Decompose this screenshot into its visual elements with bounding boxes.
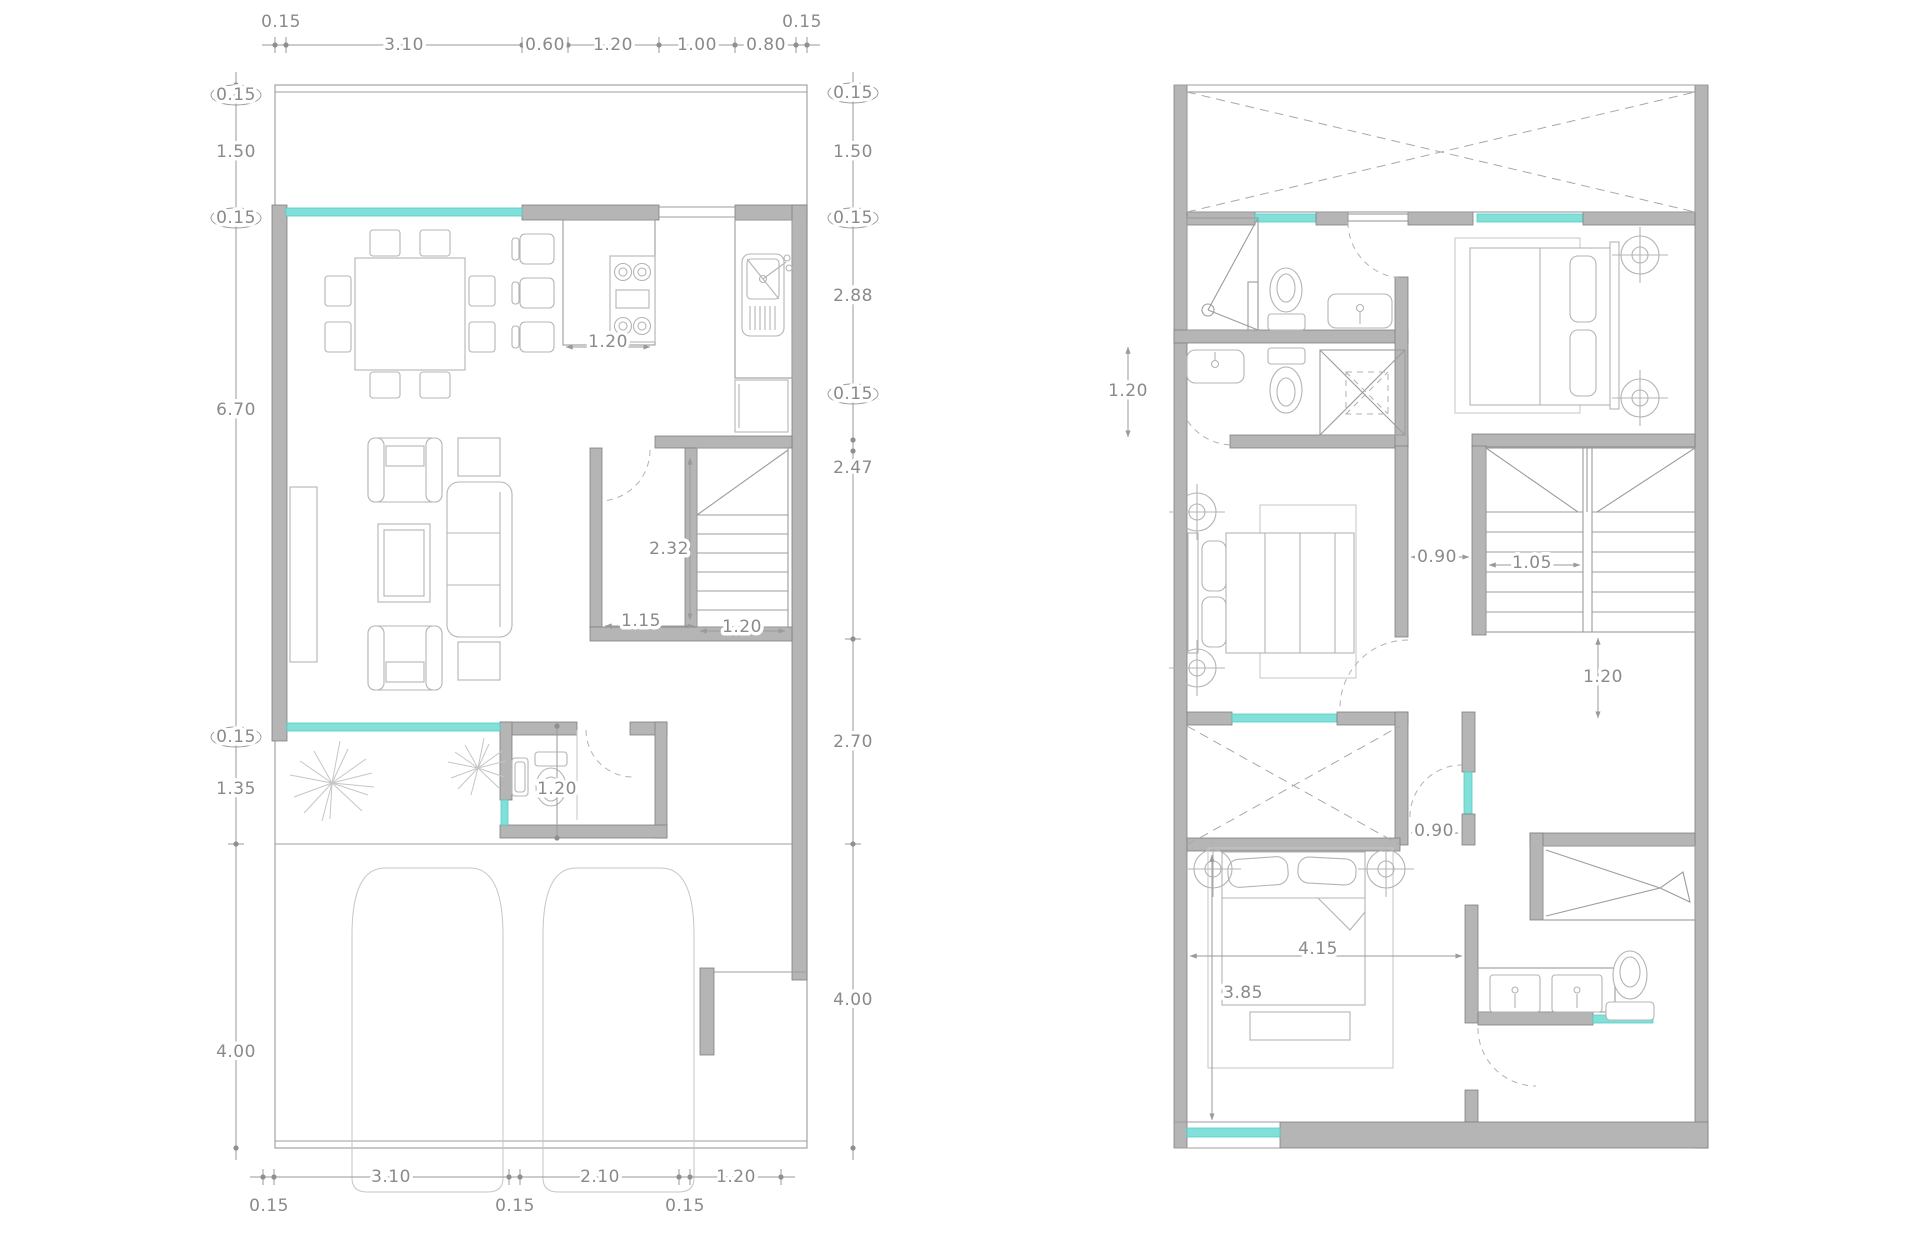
bathroom-3 [1478, 951, 1654, 1020]
window-glass [287, 723, 500, 731]
shower [1187, 218, 1258, 330]
wall [1395, 446, 1408, 637]
side-table [458, 642, 500, 680]
dim-label: 0.15 [261, 12, 301, 32]
car [352, 868, 503, 1192]
kitchen-sink [742, 254, 792, 336]
dim-label: 0.15 [833, 384, 873, 404]
door-arc [1348, 222, 1404, 278]
bedroom-2 [1169, 484, 1356, 696]
dim-label: 3.85 [1223, 983, 1263, 1003]
toilet [1268, 348, 1305, 413]
wall [1472, 434, 1695, 447]
sink [1187, 350, 1244, 383]
ceiling-light [1612, 370, 1668, 426]
dim-label: 1.00 [677, 35, 717, 55]
wall [500, 825, 667, 838]
wall [792, 205, 807, 980]
wall [1187, 712, 1232, 725]
bar-stool [512, 322, 554, 352]
pillow [1570, 256, 1596, 322]
dim-label: 1.20 [722, 617, 762, 637]
armchair [368, 438, 442, 502]
dim-label: 4.00 [833, 990, 873, 1010]
toilet [1268, 268, 1305, 330]
wall [590, 448, 602, 627]
pillow [1202, 597, 1226, 647]
dim-label: 1.20 [588, 332, 628, 352]
toilet [1606, 951, 1654, 1020]
door-arc [599, 450, 650, 501]
pillow [1202, 541, 1226, 591]
tv-console [290, 487, 317, 662]
dim-label: 0.15 [833, 83, 873, 103]
coffee-table [378, 524, 430, 602]
dim-label: 1.20 [716, 1167, 756, 1187]
dim-label: 2.10 [580, 1167, 620, 1187]
stairs [697, 448, 788, 627]
stair-treads [697, 515, 788, 610]
dim-label: 1.20 [593, 35, 633, 55]
dim-label: 0.15 [665, 1196, 705, 1216]
bed [1188, 533, 1354, 653]
window-glass [1464, 772, 1472, 814]
pillow [1297, 857, 1356, 886]
dim-label: 0.15 [495, 1196, 535, 1216]
wall [1465, 905, 1478, 1023]
window-glass [1477, 214, 1583, 222]
wall [1472, 446, 1486, 635]
dim-label: 2.70 [833, 732, 873, 752]
bathroom-2 [1187, 348, 1405, 435]
floor-plan-sheet: 0.153.100.601.201.000.800.15 0.151.500.1… [0, 0, 1920, 1242]
stove [610, 256, 655, 342]
sofa [447, 482, 512, 637]
wall [1462, 712, 1475, 772]
bar-stool [512, 234, 554, 264]
wall [1280, 1122, 1708, 1148]
dim-label: 2.47 [833, 458, 873, 478]
dim-label: 0.15 [249, 1196, 289, 1216]
chair [370, 372, 400, 398]
garage [352, 868, 694, 1192]
sink [512, 758, 528, 796]
side-table [458, 438, 500, 476]
dim-label: 0.80 [746, 35, 786, 55]
chair [370, 230, 400, 256]
wall [1187, 838, 1400, 851]
ceiling-light [1612, 227, 1668, 283]
dim-label: 0.15 [782, 12, 822, 32]
dim-label: 1.35 [216, 779, 256, 799]
dim-label: 0.60 [525, 35, 565, 55]
car [543, 868, 694, 1192]
kitchen [512, 220, 792, 432]
bedroom-1 [1455, 227, 1668, 426]
chair [325, 276, 351, 306]
bedroom-3 [1185, 841, 1462, 1120]
wall [1174, 330, 1408, 343]
window-glass [1232, 714, 1337, 722]
window-glass [1255, 214, 1316, 222]
plant-icon [290, 741, 374, 821]
door-leaf [1348, 214, 1408, 221]
dim-label: 3.10 [384, 35, 424, 55]
bathroom-1 [1187, 218, 1392, 330]
dim-label: 2.32 [649, 539, 689, 559]
bench [1250, 1012, 1350, 1040]
dim-label: 1.20 [1108, 381, 1148, 401]
pillow [1227, 856, 1289, 888]
wall [655, 722, 667, 838]
chair [325, 322, 351, 352]
wall [1395, 277, 1408, 448]
door-arc [586, 730, 633, 777]
dining-table [325, 230, 495, 398]
window-glass [286, 208, 522, 216]
window-glass [1187, 1128, 1280, 1137]
sink [1490, 975, 1540, 1012]
bed [1470, 242, 1619, 409]
wall [1408, 212, 1473, 225]
wall [272, 205, 287, 741]
wall [1695, 85, 1708, 1148]
chair [420, 372, 450, 398]
dim-label: 3.10 [371, 1167, 411, 1187]
shower [1320, 350, 1405, 435]
dim-label: 0.15 [216, 208, 256, 228]
bar-stool [512, 278, 554, 308]
chair [469, 276, 495, 306]
walk-in-closet [1543, 846, 1695, 920]
wall [1530, 833, 1543, 920]
wall [1230, 435, 1408, 448]
fridge [735, 380, 788, 432]
left-plan-dims-top: 0.153.100.601.201.000.800.15 [261, 12, 822, 55]
armchair [368, 626, 442, 690]
dim-label: 1.15 [621, 611, 661, 631]
wall [1530, 833, 1695, 846]
dim-label: 2.88 [833, 286, 873, 306]
closet-void [1187, 726, 1400, 845]
wall [655, 436, 792, 448]
sink [1552, 975, 1602, 1012]
wall [1478, 1012, 1593, 1025]
terrace-void [1187, 92, 1695, 212]
left-plan: 0.153.100.601.201.000.800.15 0.151.500.1… [211, 12, 878, 1216]
wall [1583, 212, 1695, 225]
door-arc [1478, 1028, 1536, 1086]
chair [469, 322, 495, 352]
dim-label: 1.50 [216, 142, 256, 162]
wall [1174, 85, 1187, 1148]
dim-label: 1.05 [1512, 553, 1552, 573]
right-plan: 1.200.901.051.200.904.153.85 [1108, 85, 1708, 1148]
headboard [1610, 242, 1619, 409]
dim-label: 4.00 [216, 1042, 256, 1062]
dim-label: 6.70 [216, 400, 256, 420]
wall [700, 968, 714, 1055]
sink [1328, 294, 1392, 328]
dim-label: 4.15 [1298, 939, 1338, 959]
dim-label: 0.15 [216, 727, 256, 747]
headboard [1188, 533, 1198, 653]
wall [1316, 212, 1348, 225]
chair [420, 230, 450, 256]
window-glass [501, 800, 508, 825]
dim-label: 1.20 [1583, 667, 1623, 687]
living-room [290, 438, 512, 690]
dim-label: 0.15 [833, 208, 873, 228]
dim-label: 1.50 [833, 142, 873, 162]
dim-label: 0.90 [1417, 547, 1457, 567]
plant-icon [448, 738, 506, 795]
door-arc [1410, 765, 1462, 817]
floor-plan-drawing: 0.153.100.601.201.000.800.15 0.151.500.1… [0, 0, 1920, 1242]
wall [1462, 814, 1475, 845]
wall [522, 205, 659, 220]
wall [1395, 712, 1408, 845]
wall [685, 448, 697, 627]
wall [1465, 1090, 1478, 1122]
pillow [1570, 330, 1596, 396]
dim-label: 0.15 [216, 85, 256, 105]
dim-label: 1.20 [537, 779, 577, 799]
dim-label: 0.90 [1414, 821, 1454, 841]
